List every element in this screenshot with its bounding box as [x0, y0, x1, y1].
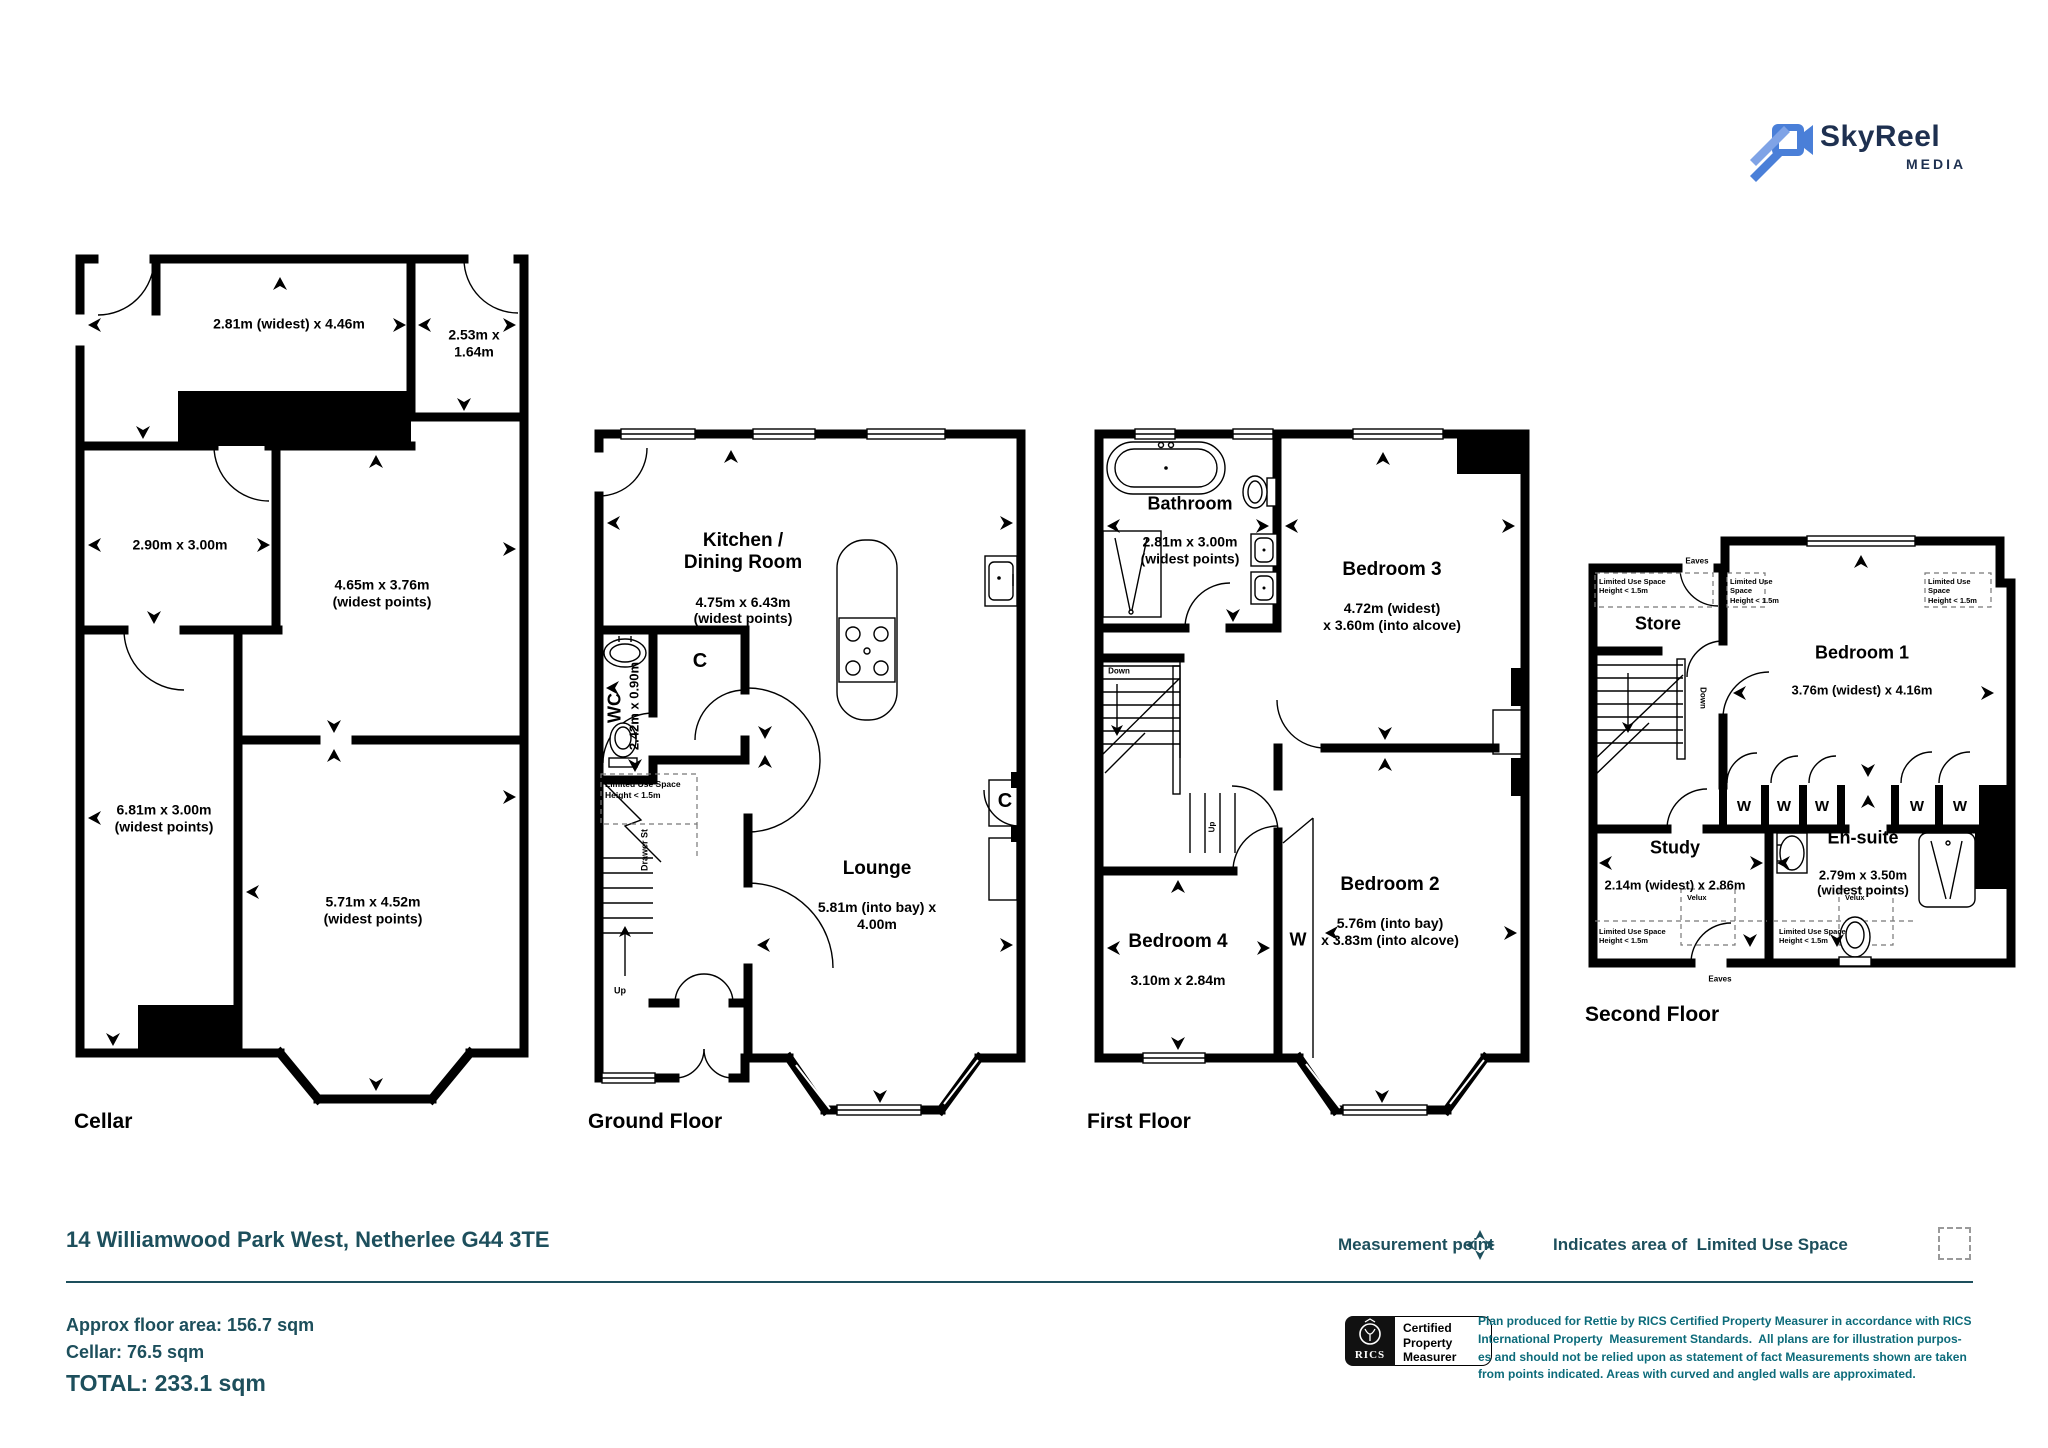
wardrobe-label-4: W: [1910, 798, 1924, 816]
legend-limited-use-space: Indicates area of Limited Use Space: [1553, 1235, 1848, 1255]
room-label-bedroom4: Bedroom 4 3.10m x 2.84m: [1128, 912, 1227, 1008]
ground-walls: [599, 434, 1021, 1110]
bathroom-name: Bathroom: [1141, 493, 1240, 514]
floor-plan-cellar: 2.81m (widest) x 4.46m 2.53m x 1.64m 2.9…: [66, 253, 566, 1113]
room-label-wc: WC: [604, 693, 625, 723]
wardrobe-label-2: W: [1777, 798, 1791, 816]
limited-use-note-4: Limited Use Space Height < 1.5m: [1599, 927, 1679, 946]
bedroom2-name: Bedroom 2: [1321, 874, 1459, 896]
closet-label-2: C: [998, 790, 1012, 814]
shower-icon: [1919, 833, 1975, 907]
room-label-study: Study 2.14m (widest) x 2.86m: [1605, 818, 1746, 911]
eaves-label-top: Eaves: [1685, 556, 1708, 565]
lounge-dims: 5.81m (into bay) x 4.00m: [798, 899, 956, 932]
brand-subtitle: MEDIA: [1906, 156, 1966, 172]
room-label-bedroom3: Bedroom 3 4.72m (widest) x 3.60m (into a…: [1323, 540, 1461, 652]
measurement-point-icon: [1464, 1229, 1496, 1261]
room-label-cellar-3: 2.90m x 3.00m: [133, 537, 228, 554]
bedroom4-name: Bedroom 4: [1128, 931, 1227, 953]
kitchen-island-icon: [837, 540, 897, 720]
floor-label-ground: Ground Floor: [588, 1110, 722, 1134]
velux-label-2: Velux: [1845, 893, 1865, 902]
room-label-cellar-4: 4.65m x 3.76m (widest points): [333, 576, 432, 609]
limited-use-note: Limited Use Space Height < 1.5m: [605, 779, 697, 801]
stairs: [1593, 659, 1685, 777]
wardrobe-label-5: W: [1953, 798, 1967, 816]
study-name: Study: [1605, 837, 1746, 858]
room-label-lounge: Lounge 5.81m (into bay) x 4.00m: [798, 839, 956, 951]
camera-logo-icon: [1748, 114, 1814, 184]
area-total: TOTAL: 233.1 sqm: [66, 1370, 314, 1397]
limited-use-note-5: Limited Use Space Height < 1.5m: [1779, 927, 1859, 946]
second-windows: [1807, 536, 1915, 546]
room-label-kitchen: Kitchen / Dining Room 4.75m x 6.43m (wid…: [684, 511, 802, 645]
lounge-name: Lounge: [798, 858, 956, 880]
brand-title: SkyReel: [1820, 120, 1940, 154]
floor-plan-second: Store Eaves Bedroom 1 3.76m (widest) x 4…: [1583, 533, 2023, 1013]
bedroom1-dims: 3.76m (widest) x 4.16m: [1792, 682, 1933, 697]
area-approx: Approx floor area: 156.7 sqm: [66, 1312, 314, 1339]
up-label: Up: [614, 986, 626, 997]
bedroom3-name: Bedroom 3: [1323, 559, 1461, 581]
study-dims: 2.14m (widest) x 2.86m: [1605, 877, 1746, 892]
limited-use-note-3: Limited Use Space Height < 1.5m: [1928, 577, 1990, 605]
cellar-plan-drawing: [66, 253, 566, 1113]
room-label-store: Store: [1635, 613, 1681, 634]
velux-label-1: Velux: [1687, 893, 1707, 902]
room-label-bedroom1: Bedroom 1 3.76m (widest) x 4.16m: [1792, 623, 1933, 716]
limited-use-box-icon: [1938, 1227, 1971, 1260]
area-summary: Approx floor area: 156.7 sqm Cellar: 76.…: [66, 1312, 314, 1397]
stairs-up: [599, 774, 697, 976]
rics-wordmark: RICS: [1345, 1349, 1395, 1361]
floor-label-second: Second Floor: [1585, 1003, 1719, 1027]
rics-lion-icon: [1345, 1316, 1395, 1350]
floorplan-page: SkyReel MEDIA: [0, 0, 2048, 1448]
floor-label-first: First Floor: [1087, 1110, 1191, 1134]
room-label-cellar-1: 2.81m (widest) x 4.46m: [213, 316, 365, 333]
disclaimer-text: Plan produced for Rettie by RICS Certifi…: [1478, 1313, 1993, 1384]
drawer-st-label: Drawer St: [640, 829, 651, 871]
ensuite-sink-icon: [1777, 833, 1807, 873]
cellar-walls: [80, 259, 524, 1099]
wardrobe-label-1: W: [1737, 798, 1751, 816]
rics-badge: RICS Certified Property Measurer: [1345, 1316, 1493, 1366]
up-label: Up: [1207, 822, 1216, 833]
area-cellar: Cellar: 76.5 sqm: [66, 1339, 314, 1366]
limited-use-note-1: Limited Use Space Height < 1.5m: [1599, 577, 1679, 596]
ensuite-name: En-suite: [1817, 828, 1909, 849]
floor-plan-first: Bathroom 2.81m x 3.00m (widest points) B…: [1085, 428, 1565, 1128]
down-label: Down: [1698, 687, 1707, 709]
toilet-icon: [1243, 476, 1276, 508]
floor-label-cellar: Cellar: [74, 1110, 132, 1134]
kitchen-dims: 4.75m x 6.43m (widest points): [684, 593, 802, 626]
bedroom1-name: Bedroom 1: [1792, 642, 1933, 663]
footer-divider: [66, 1281, 1973, 1283]
ground-plan-drawing: [585, 428, 1035, 1128]
bedroom3-dims: 4.72m (widest) x 3.60m (into alcove): [1323, 600, 1461, 633]
eaves-label-bottom: Eaves: [1708, 974, 1731, 983]
limited-use-note-2: Limited Use Space Height < 1.5m: [1730, 577, 1790, 605]
brand-logo: SkyReel MEDIA: [1748, 112, 2008, 187]
closet-label-1: C: [693, 650, 707, 674]
down-label: Down: [1108, 666, 1130, 675]
kitchen-sink-icon: [985, 556, 1017, 606]
property-address: 14 Williamwood Park West, Netherlee G44 …: [66, 1227, 550, 1253]
room-label-bedroom2: Bedroom 2 5.76m (into bay) x 3.83m (into…: [1321, 855, 1459, 967]
rics-logo-block: RICS: [1345, 1316, 1395, 1366]
room-label-cellar-6: 5.71m x 4.52m (widest points): [324, 893, 423, 926]
wardrobe-label: W: [1290, 929, 1307, 950]
room-label-cellar-5: 6.81m x 3.00m (widest points): [115, 801, 214, 834]
floor-plan-ground: Kitchen / Dining Room 4.75m x 6.43m (wid…: [585, 428, 1035, 1128]
bathroom-dims: 2.81m x 3.00m (widest points): [1141, 534, 1240, 567]
room-label-bathroom: Bathroom 2.81m x 3.00m (widest points): [1141, 475, 1240, 586]
room-label-cellar-2: 2.53m x 1.64m: [428, 326, 520, 359]
room-label-wc-dims: 2.42m x 0.90m: [626, 662, 641, 750]
kitchen-name: Kitchen / Dining Room: [684, 530, 802, 575]
bedroom4-dims: 3.10m x 2.84m: [1128, 972, 1227, 989]
bedroom2-dims: 5.76m (into bay) x 3.83m (into alcove): [1321, 915, 1459, 948]
